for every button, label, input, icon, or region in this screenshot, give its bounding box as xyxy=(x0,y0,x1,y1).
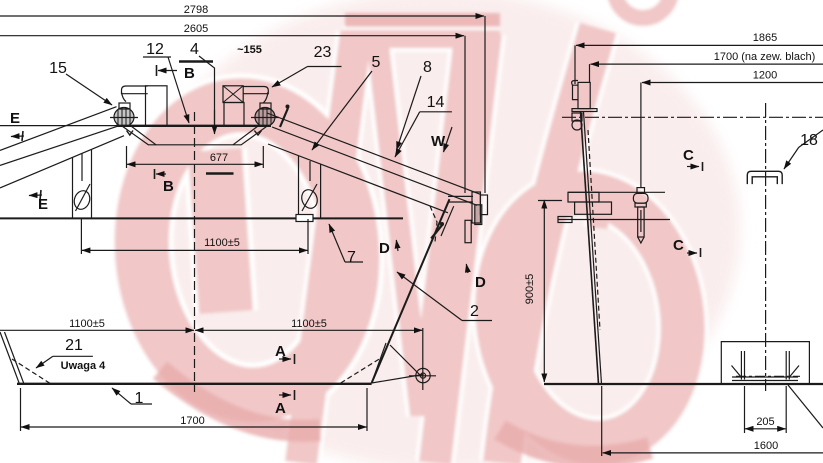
svg-text:2798: 2798 xyxy=(184,4,208,16)
svg-text:2605: 2605 xyxy=(184,23,208,35)
svg-text:23: 23 xyxy=(314,44,332,61)
svg-text:1700: 1700 xyxy=(180,415,204,427)
svg-text:8: 8 xyxy=(423,59,432,76)
svg-text:677: 677 xyxy=(210,152,228,164)
svg-text:1100±5: 1100±5 xyxy=(204,237,240,249)
svg-text:D: D xyxy=(379,240,390,257)
svg-text:A: A xyxy=(275,400,286,417)
svg-text:14: 14 xyxy=(427,94,445,111)
svg-text:1600: 1600 xyxy=(754,440,778,452)
svg-text:1100±5: 1100±5 xyxy=(69,318,105,330)
svg-text:1: 1 xyxy=(135,390,144,407)
svg-text:E: E xyxy=(38,196,48,213)
svg-text:B: B xyxy=(184,65,195,82)
svg-text:15: 15 xyxy=(49,60,67,77)
svg-text:1865: 1865 xyxy=(753,32,777,44)
svg-text:A: A xyxy=(275,343,286,360)
svg-text:2: 2 xyxy=(470,303,479,320)
svg-text:21: 21 xyxy=(65,337,83,354)
svg-text:205: 205 xyxy=(756,416,774,428)
svg-text:~155: ~155 xyxy=(237,44,262,56)
svg-text:C: C xyxy=(683,147,694,164)
svg-text:1100±5: 1100±5 xyxy=(291,318,327,330)
svg-text:1700 (na zew. blach): 1700 (na zew. blach) xyxy=(714,51,816,63)
svg-text:900±5: 900±5 xyxy=(524,274,536,305)
svg-text:7: 7 xyxy=(347,249,356,266)
svg-text:4: 4 xyxy=(190,41,199,58)
svg-text:B: B xyxy=(163,178,174,195)
svg-text:12: 12 xyxy=(146,41,164,58)
svg-text:D: D xyxy=(475,274,486,291)
svg-text:W: W xyxy=(431,133,446,150)
svg-text:C: C xyxy=(673,237,684,254)
svg-text:Uwaga 4: Uwaga 4 xyxy=(61,360,107,372)
svg-text:E: E xyxy=(10,110,20,127)
svg-text:1200: 1200 xyxy=(753,70,777,82)
svg-text:5: 5 xyxy=(372,54,381,71)
svg-text:18: 18 xyxy=(800,132,818,149)
